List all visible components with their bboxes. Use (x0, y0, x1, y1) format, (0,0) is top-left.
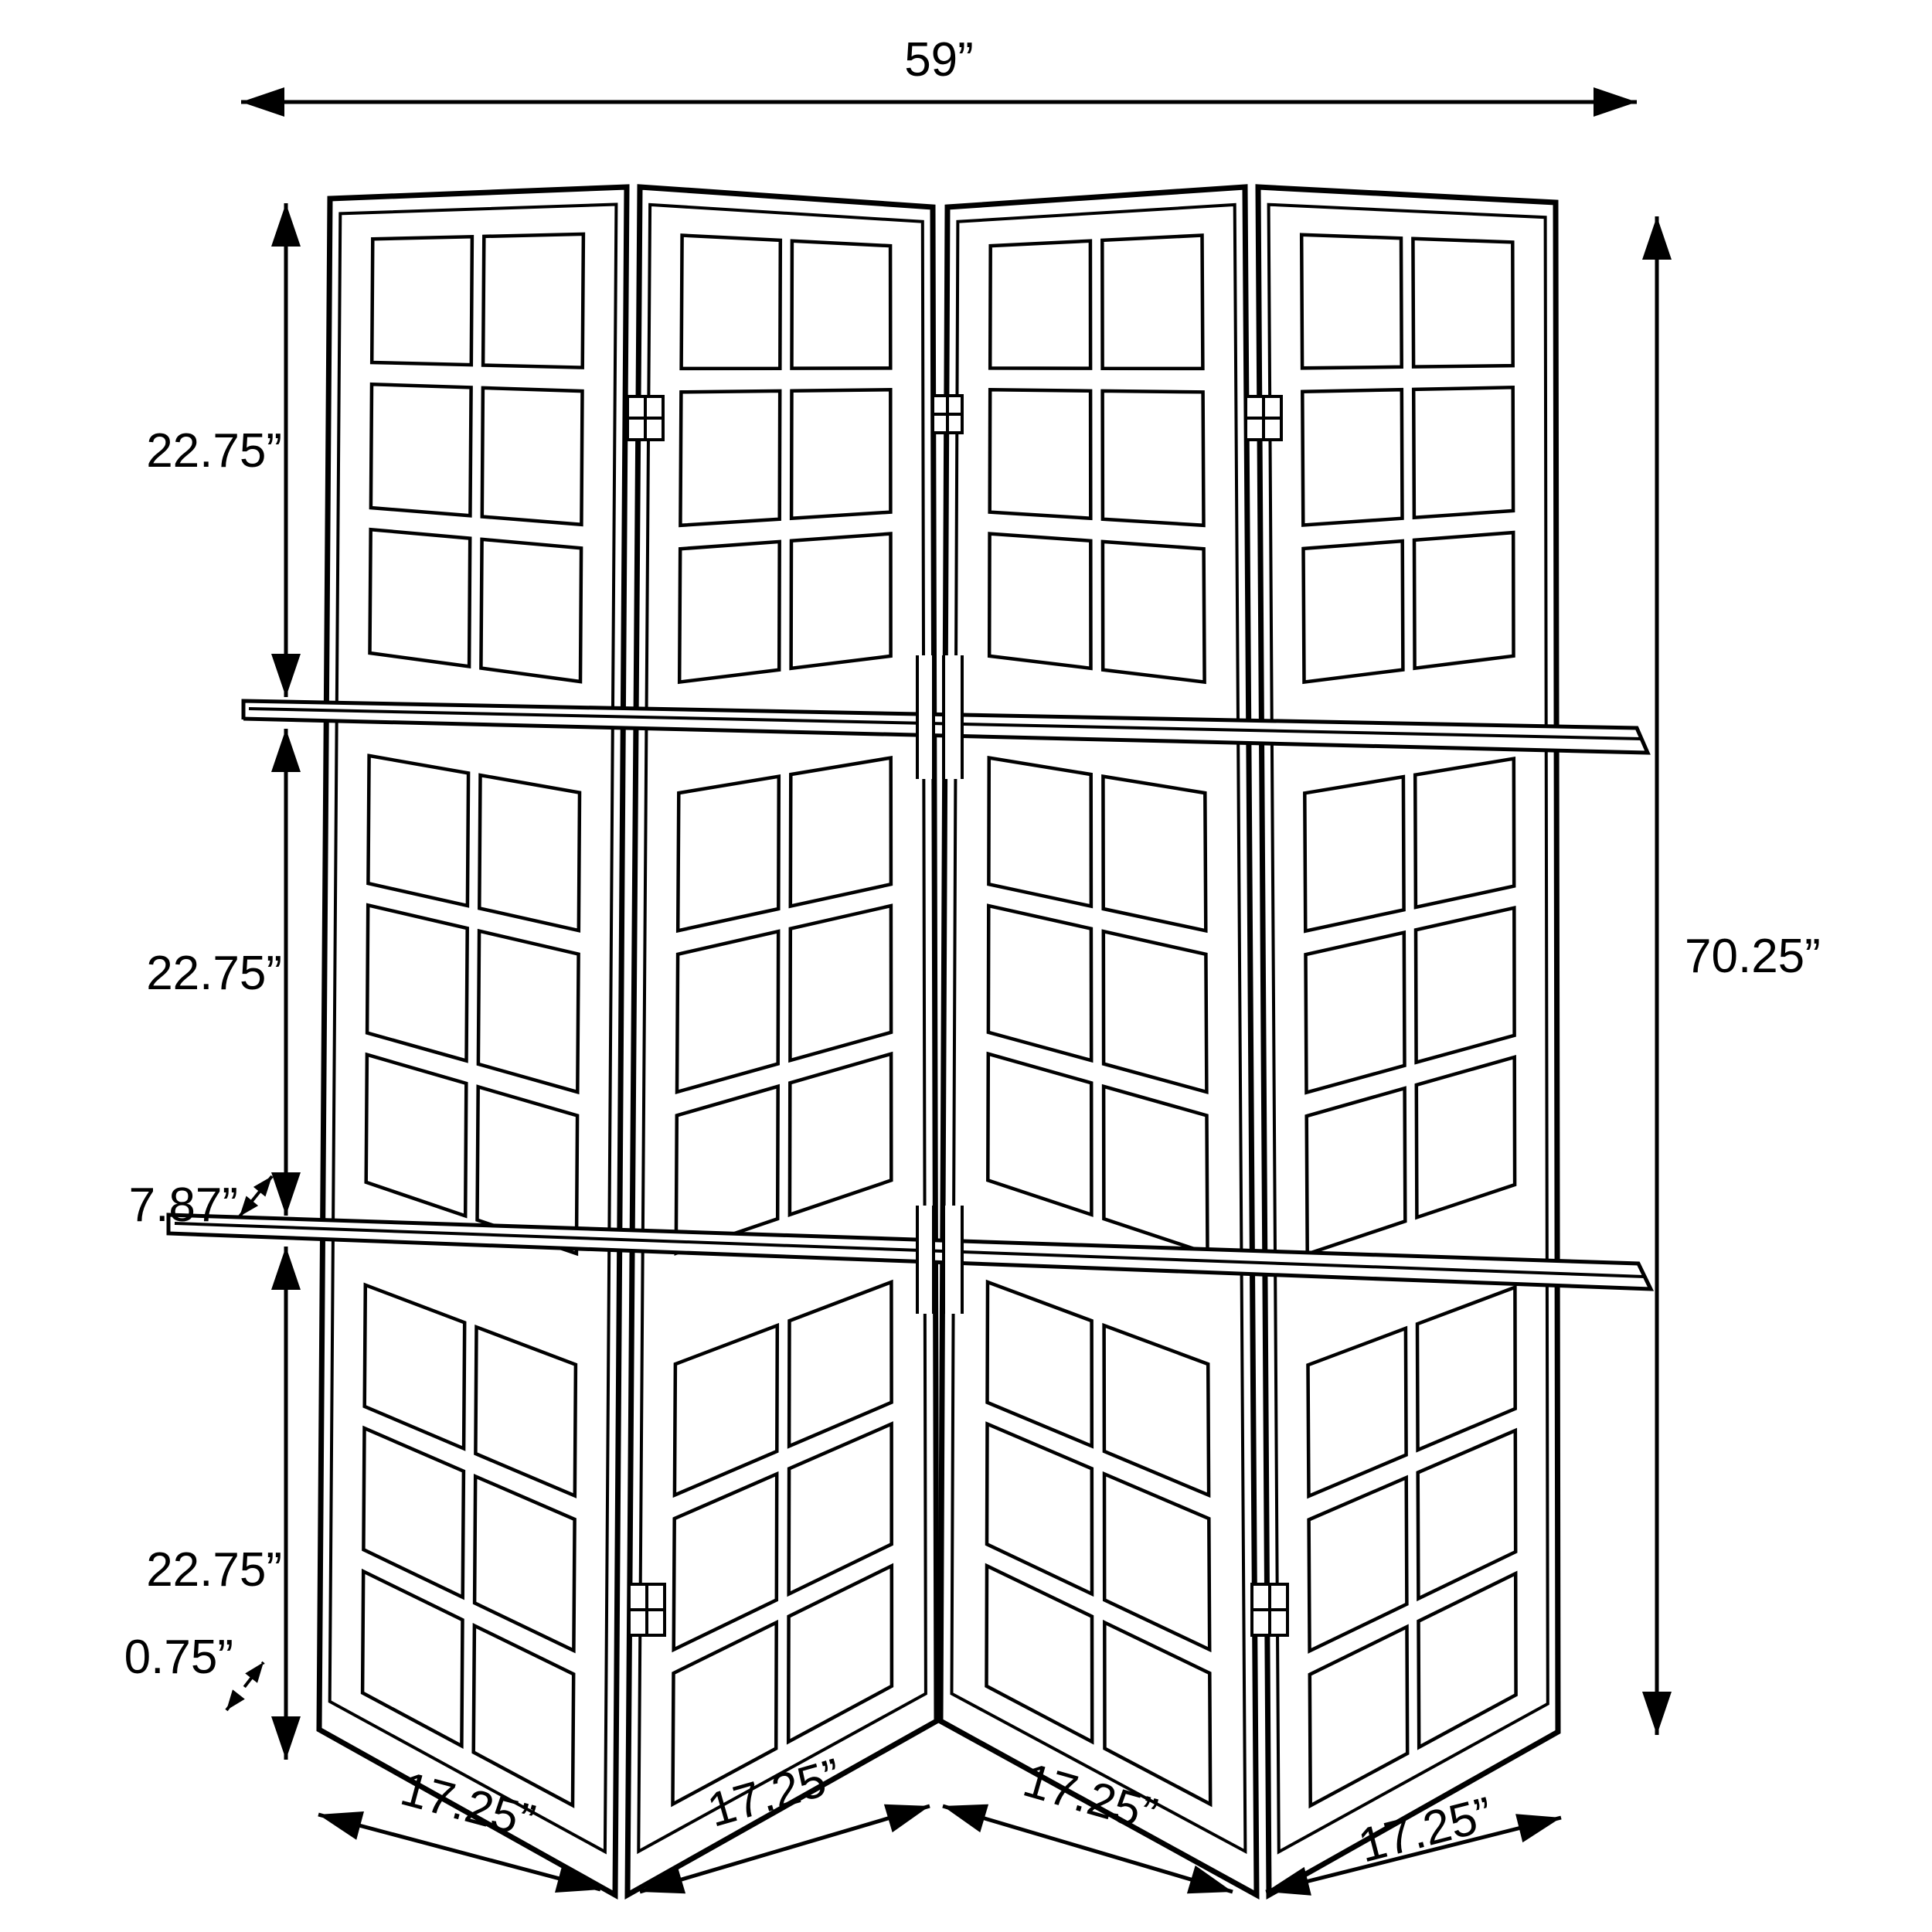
diagram-canvas: 59” 70.25” 22.75” 22.75” 22.75” 7.87” 0.… (0, 0, 1932, 1932)
screen-panel-1 (319, 187, 627, 1895)
hinge-top-junction-2 (933, 396, 962, 433)
hinge-bottom-junction-1 (629, 1584, 665, 1635)
dimension-diagram: 59” 70.25” 22.75” 22.75” 22.75” 7.87” 0.… (0, 0, 1932, 1932)
shelf-depth-label: 7.87” (129, 1179, 238, 1232)
screen-panel-2 (628, 187, 937, 1895)
hinge-top-junction-3 (1246, 396, 1281, 440)
screen-drawing-layer (168, 87, 1672, 1896)
section-height-label-3: 22.75” (146, 1543, 282, 1597)
section-height-label-1: 22.75” (146, 424, 282, 478)
hinge-bottom-junction-3 (1252, 1584, 1287, 1635)
screen-panel-4 (1258, 187, 1558, 1895)
screen-panel-3 (940, 187, 1257, 1895)
overall-height-label: 70.25” (1685, 930, 1821, 983)
frame-thickness-label: 0.75” (124, 1631, 233, 1684)
hinge-top-junction-1 (628, 396, 663, 440)
overall-width-label: 59” (904, 33, 974, 87)
section-height-label-2: 22.75” (146, 947, 282, 1000)
